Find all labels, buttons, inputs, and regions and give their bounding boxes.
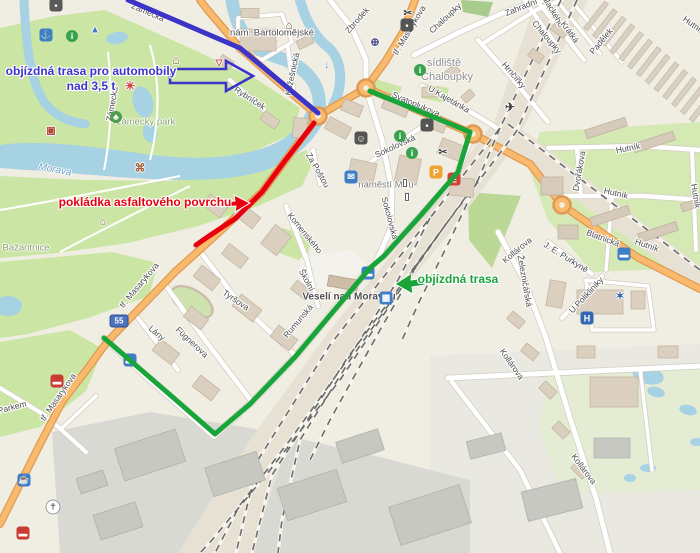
info-icon-glyph: i — [411, 148, 414, 158]
cafe-icon[interactable]: ☕ — [18, 474, 31, 487]
camp-icon-glyph: ▲ — [90, 25, 100, 36]
supermarket-icon-glyph: E — [451, 174, 457, 184]
hospital-icon-glyph: H — [584, 313, 591, 323]
camp-icon[interactable]: ▲ — [90, 25, 100, 36]
viewpoint-icon-glyph: ▽ — [216, 58, 223, 69]
poi-icon[interactable]: ▪ — [50, 0, 63, 12]
church-pin-icon-glyph: ✝ — [49, 502, 57, 513]
poi-icon-glyph: ▪ — [54, 0, 57, 10]
parking-icon[interactable]: P — [430, 166, 443, 179]
museum-icon[interactable]: ⌂ — [285, 18, 292, 32]
info-icon[interactable]: i — [394, 130, 406, 142]
bus-stop-icon[interactable]: ▬ — [124, 354, 137, 367]
scissors-icon-glyph: ✂ — [438, 146, 447, 159]
church-pin-icon[interactable]: ✝ — [46, 500, 61, 515]
museum-icon-glyph: ⌂ — [285, 18, 292, 32]
train-station-icon-glyph: ▦ — [382, 293, 391, 304]
info-icon[interactable]: i — [66, 30, 78, 42]
train-station-icon[interactable]: ▦ — [380, 292, 393, 305]
info-icon[interactable]: i — [406, 147, 418, 159]
shop-icon[interactable]: ▪ — [421, 119, 434, 132]
castle-icon-glyph: ⌂ — [172, 53, 179, 67]
bus-stop-icon-glyph: ▬ — [126, 355, 135, 365]
emergency-icon-glyph: ✶ — [615, 290, 624, 303]
viewpoint-icon[interactable]: ▽ — [216, 58, 223, 69]
info-icon[interactable]: i — [414, 64, 426, 76]
emergency-icon[interactable]: ✶ — [615, 290, 624, 303]
camera-icon-glyph: ▪ — [405, 20, 408, 30]
theatre-icon-glyph: ☺ — [356, 133, 365, 143]
hospital-icon[interactable]: H — [581, 312, 594, 325]
parks — [0, 0, 700, 494]
maze-icon-glyph: ▣ — [46, 126, 55, 137]
fire-station-icon[interactable]: ▬ — [51, 375, 64, 388]
airfield-icon-glyph: ✈ — [505, 100, 515, 114]
windmill-icon-glyph: ⌘ — [135, 162, 146, 175]
parking-icon-glyph: P — [433, 167, 439, 177]
supermarket-icon[interactable]: E — [448, 173, 461, 186]
info-icon-glyph: i — [71, 31, 74, 41]
door-icon-glyph: ▯ — [402, 178, 408, 189]
church-icon[interactable]: ⌂ — [100, 217, 106, 228]
flow-arrow-icon[interactable]: ↓ — [324, 57, 330, 71]
info-icon-glyph: i — [399, 131, 402, 141]
bus-stop-icon-glyph: ▬ — [620, 249, 629, 259]
garages — [584, 1, 700, 122]
tree-icon[interactable]: ♣ — [110, 111, 122, 123]
door-icon-glyph: ▯ — [404, 192, 410, 203]
cafe-icon-glyph: ☕ — [18, 475, 29, 486]
bus-stop-icon[interactable]: ▬ — [362, 267, 375, 280]
mail-icon-glyph: ✉ — [347, 172, 355, 183]
tree-icon-glyph: ♣ — [113, 112, 119, 122]
fire-station-icon-glyph: ▬ — [19, 528, 28, 538]
theatre-icon[interactable]: ☺ — [355, 132, 368, 145]
fire-station-icon[interactable]: ▬ — [17, 527, 30, 540]
castle-icon[interactable]: ⌂ — [172, 53, 179, 67]
map-canvas[interactable]: ZámeckáZámeckánám. BartolomějskéZbrodekt… — [0, 0, 700, 553]
church-icon-glyph: ⌂ — [100, 217, 106, 228]
camera-icon[interactable]: ▪ — [401, 19, 414, 32]
base-map — [0, 0, 700, 553]
globe-icon[interactable]: ⊕ — [370, 36, 379, 49]
maze-icon[interactable]: ▣ — [46, 126, 55, 137]
fountain-icon-glyph: ✳ — [125, 79, 135, 93]
anchor-icon[interactable]: ⚓ — [40, 29, 53, 42]
shop-icon-glyph: ▪ — [425, 120, 428, 130]
anchor-icon-glyph: ⚓ — [40, 30, 51, 41]
airfield-icon[interactable]: ✈ — [505, 100, 515, 114]
info-icon-glyph: i — [419, 65, 422, 75]
bus-stop-icon-glyph: ▬ — [364, 268, 373, 278]
mail-icon[interactable]: ✉ — [345, 171, 358, 184]
globe-icon-glyph: ⊕ — [370, 36, 379, 49]
bus-stop-icon[interactable]: ▬ — [618, 248, 631, 261]
windmill-icon[interactable]: ⌘ — [135, 162, 146, 175]
scissors-icon[interactable]: ✂ — [438, 146, 447, 159]
fire-station-icon-glyph: ▬ — [53, 376, 62, 386]
flow-arrow-icon-glyph: ↓ — [324, 57, 330, 71]
fountain-icon[interactable]: ✳ — [125, 79, 135, 93]
door-icon[interactable]: ▯ — [404, 192, 410, 203]
door-icon[interactable]: ▯ — [402, 178, 408, 189]
